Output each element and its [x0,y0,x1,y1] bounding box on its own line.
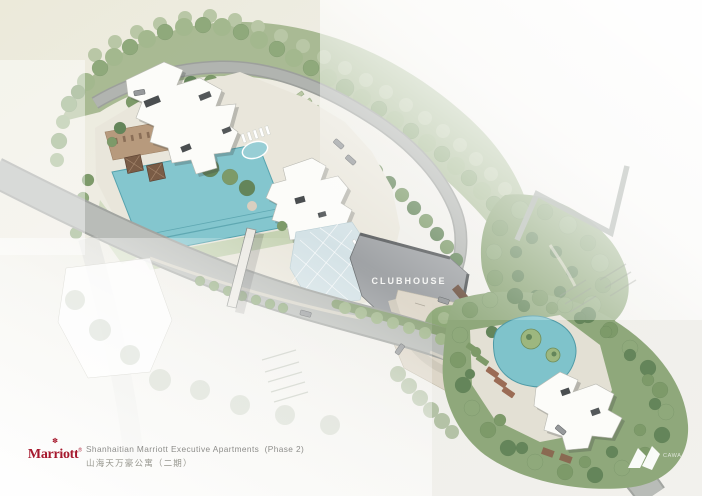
masterplan-sheet: CLUBHOUSE [0,0,702,496]
fade-left [0,60,85,255]
brand-name: Marriott [28,447,78,462]
registered-mark: ® [78,448,82,454]
project-title-block: Shanhaitian Marriott Executive Apartment… [86,444,304,469]
watermark-text: CAWA [663,453,682,459]
project-title-english: Shanhaitian Marriott Executive Apartment… [86,444,304,454]
project-title-chinese: 山海天万豪公寓（二期） [86,457,304,469]
marriott-logo: ✽ Marriott® [27,438,83,462]
site-plan-drawing: CLUBHOUSE [0,0,702,496]
marriott-emblem-icon: ✽ [27,438,83,446]
